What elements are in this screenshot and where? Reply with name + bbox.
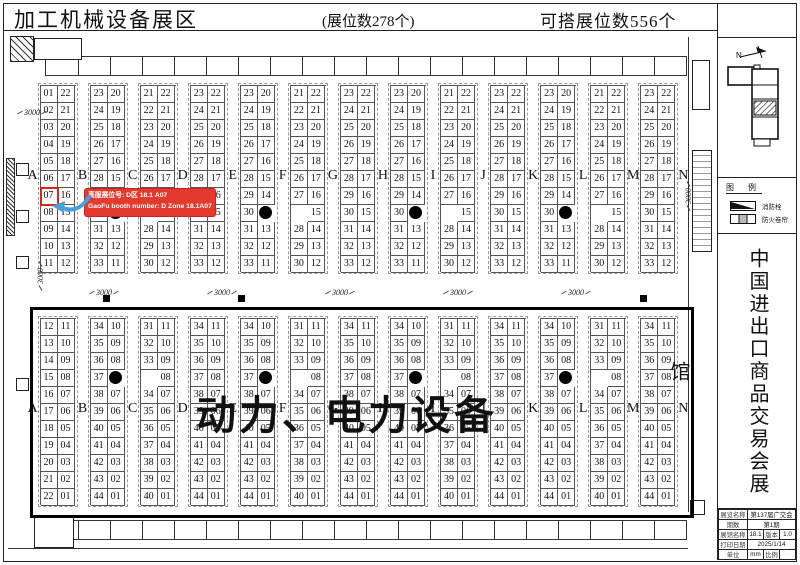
booth-cell: 16 [658, 188, 675, 205]
booth-cell: 01 [358, 489, 375, 506]
booth-cell: 09 [41, 222, 58, 239]
booth-cell: 34 [341, 319, 358, 336]
zone-letter: B [76, 85, 89, 272]
perimeter-pane [494, 57, 495, 75]
booth-cell: 23 [91, 86, 108, 103]
booth-cell: 23 [141, 120, 158, 137]
booth-cell: 13 [558, 222, 575, 239]
booth-cell: 23 [641, 86, 658, 103]
booth-cell: 15 [358, 205, 375, 222]
booth-cell: 15 [258, 171, 275, 188]
booth-cell: 22 [41, 489, 58, 506]
booth-cell: 18 [558, 120, 575, 137]
booth-cell: 09 [208, 353, 225, 370]
booth-column-pair: 2320241925182617271628152914303113321233… [90, 85, 126, 272]
buildable-count-label: 可搭展位数556个 [540, 7, 677, 32]
booth-cell: 25 [441, 154, 458, 171]
booth-cell: 02 [608, 472, 625, 489]
booth-cell: 13 [58, 239, 75, 256]
perimeter-pane [110, 521, 111, 539]
booth-cell: 18 [258, 120, 275, 137]
booth-cell: 29 [241, 188, 258, 205]
booth-cell: 19 [258, 103, 275, 120]
booth-cell: 27 [341, 154, 358, 171]
booth-cell: 16 [41, 387, 58, 404]
booth-cell: 40 [141, 489, 158, 506]
booth-cell: 22 [58, 86, 75, 103]
booth-cell: 12 [208, 256, 225, 273]
booth-cell: 33 [191, 256, 208, 273]
gaofu-booth-annotation: 高服展位号: D区 18.1 A07 GaoFu booth number: D… [85, 189, 215, 216]
booth-cell: 22 [208, 86, 225, 103]
booth-cell: 36 [241, 353, 258, 370]
booth-cell: 31 [141, 319, 158, 336]
booth-cell: 23 [441, 120, 458, 137]
annotation-line-cn: 高服展位号: D区 18.1 A07 [88, 190, 212, 201]
booth-cell: 38 [441, 455, 458, 472]
booth-cell: 08 [408, 353, 425, 370]
zone-letter: M [627, 85, 640, 272]
booth-cell: 27 [441, 188, 458, 205]
booth-cell: 02 [408, 472, 425, 489]
booth-cell: 15 [608, 205, 625, 222]
booth-cell: 20 [608, 120, 625, 137]
bottom-perimeter-structures [45, 520, 687, 540]
booth-cell: 20 [108, 86, 125, 103]
booth-cell: 39 [141, 472, 158, 489]
dimension-label: 3000 [324, 288, 356, 297]
right-stair-structure [692, 150, 712, 252]
booth-cell: 16 [508, 188, 525, 205]
booth-cell: 23 [491, 86, 508, 103]
booth-cell: 28 [391, 171, 408, 188]
booth-cell: 13 [41, 336, 58, 353]
booth-cell: 10 [208, 336, 225, 353]
booth-cell: 11 [508, 319, 525, 336]
booth-column-pair: 2322242125202619271828172916301531143213… [490, 85, 526, 272]
booth-cell: 04 [558, 438, 575, 455]
venue-vertical-title: 中国进出口商品交易会展馆 [717, 238, 796, 506]
booth-cell: 17 [308, 171, 325, 188]
booth-cell: 02 [208, 472, 225, 489]
legend-title: 图 例 [726, 182, 762, 194]
booth-cell: 02 [258, 472, 275, 489]
perimeter-pane [494, 521, 495, 539]
booth-cell: 13 [358, 239, 375, 256]
booth-cell: 19 [508, 137, 525, 154]
booth-cell: 21 [658, 103, 675, 120]
booth-cell: 13 [408, 222, 425, 239]
booth-cell: 10 [558, 319, 575, 336]
perimeter-pane [654, 57, 655, 75]
booth-cell: 07 [158, 387, 175, 404]
booth-cell: 34 [391, 319, 408, 336]
booth-cell: 33 [441, 353, 458, 370]
booth-cell: 20 [308, 120, 325, 137]
booth-cell: 02 [658, 472, 675, 489]
booth-cell: 08 [258, 353, 275, 370]
booth-cell: 39 [541, 404, 558, 421]
booth-cell: 33 [241, 256, 258, 273]
booth-cell: 10 [308, 336, 325, 353]
booth-cell: 10 [608, 336, 625, 353]
booth-cell [558, 205, 575, 222]
sidebar-divider [717, 177, 796, 178]
booth-cell: 39 [91, 404, 108, 421]
booth-cell: 10 [458, 336, 475, 353]
pillar-dot [409, 206, 422, 219]
booth-cell: 14 [208, 222, 225, 239]
booth-cell: 03 [308, 455, 325, 472]
booth-cell: 06 [558, 404, 575, 421]
booth-cell: 44 [191, 489, 208, 506]
perimeter-pane [206, 57, 207, 75]
booth-cell [441, 205, 458, 222]
booth-cell: 35 [591, 404, 608, 421]
booth-cell: 34 [591, 387, 608, 404]
booth-cell: 21 [291, 86, 308, 103]
booth-cell: 30 [341, 205, 358, 222]
booth-cell: 34 [191, 319, 208, 336]
booth-cell: 22 [291, 103, 308, 120]
zone-letter: D [176, 85, 189, 272]
booth-cell: 12 [258, 239, 275, 256]
booth-cell: 43 [191, 472, 208, 489]
booth-cell: 33 [141, 353, 158, 370]
perimeter-pane [238, 521, 239, 539]
booth-cell: 16 [358, 188, 375, 205]
booth-cell: 21 [458, 103, 475, 120]
booth-cell: 10 [41, 239, 58, 256]
booth-cell: 15 [508, 205, 525, 222]
booth-cell: 11 [658, 319, 675, 336]
booth-cell: 06 [41, 171, 58, 188]
booth-cell: 16 [558, 154, 575, 171]
booth-cell: 42 [91, 455, 108, 472]
booth-cell: 10 [258, 319, 275, 336]
booth-cell: 35 [191, 336, 208, 353]
booth-cell: 06 [508, 404, 525, 421]
booth-cell: 11 [458, 319, 475, 336]
booth-cell: 18 [508, 154, 525, 171]
booth-cell: 16 [608, 188, 625, 205]
perimeter-pane [462, 57, 463, 75]
booth-cell: 28 [241, 171, 258, 188]
booth-cell: 31 [291, 319, 308, 336]
booth-cell: 34 [91, 319, 108, 336]
booth-cell: 20 [58, 120, 75, 137]
booth-cell: 21 [508, 103, 525, 120]
zone-letter: G [326, 85, 339, 272]
booth-cell: 27 [291, 188, 308, 205]
booth-cell [408, 205, 425, 222]
perimeter-pane [238, 57, 239, 75]
booth-cell: 07 [658, 387, 675, 404]
booth-cell: 01 [408, 489, 425, 506]
booth-cell: 07 [58, 387, 75, 404]
booth-cell: 16 [408, 154, 425, 171]
booth-cell: 21 [208, 103, 225, 120]
booth-cell: 09 [508, 353, 525, 370]
booth-cell: 36 [491, 353, 508, 370]
booth-cell: 28 [541, 171, 558, 188]
booth-cell: 44 [341, 489, 358, 506]
booth-cell: 11 [208, 319, 225, 336]
booth-cell: 26 [391, 137, 408, 154]
titleblock-row: 期数 第1期 [719, 520, 796, 530]
booth-cell: 18 [158, 154, 175, 171]
booth-column-pair: 2322242125202619271828172916301531143213… [640, 85, 676, 272]
booth-cell: 01 [258, 489, 275, 506]
booth-column-pair: 2320241925182617271628152914303113321233… [390, 85, 426, 272]
booth-cell: 15 [658, 205, 675, 222]
booth-cell: 08 [558, 353, 575, 370]
booth-cell: 03 [158, 455, 175, 472]
booth-cell: 20 [558, 86, 575, 103]
booth-cell: 35 [491, 336, 508, 353]
booth-cell: 01 [508, 489, 525, 506]
booth-cell: 06 [158, 404, 175, 421]
perimeter-pane [142, 521, 143, 539]
booth-cell: 18 [308, 154, 325, 171]
booth-cell: 19 [358, 137, 375, 154]
booth-cell: 32 [541, 239, 558, 256]
zone-letter: C [126, 85, 139, 272]
booth-cell: 03 [358, 455, 375, 472]
booth-cell: 03 [658, 455, 675, 472]
booth-cell: 21 [591, 86, 608, 103]
booth-cell: 18 [58, 154, 75, 171]
booth-cell: 11 [158, 319, 175, 336]
booth-cell: 25 [91, 120, 108, 137]
booth-cell: 41 [541, 438, 558, 455]
pillar-dot [559, 371, 572, 384]
booth-cell: 26 [541, 137, 558, 154]
booth-cell: 29 [641, 188, 658, 205]
booth-cell: 21 [158, 103, 175, 120]
perimeter-pane [302, 57, 303, 75]
booth-cell: 22 [508, 86, 525, 103]
booth-cell: 33 [491, 256, 508, 273]
booth-cell: 28 [191, 171, 208, 188]
booth-cell: 03 [258, 455, 275, 472]
booth-cell: 17 [41, 404, 58, 421]
vestibule-structure [34, 38, 82, 60]
booth-cell: 02 [158, 472, 175, 489]
booth-cell: 12 [658, 256, 675, 273]
booth-cell: 26 [241, 137, 258, 154]
booth-cell: 13 [308, 239, 325, 256]
booth-cell: 01 [108, 489, 125, 506]
booth-cell: 17 [658, 171, 675, 188]
booth-cell: 18 [608, 154, 625, 171]
booth-cell: 10 [658, 336, 675, 353]
zone-letter: N [677, 318, 690, 505]
booth-cell: 35 [391, 336, 408, 353]
booth-cell: 02 [58, 472, 75, 489]
booth-cell: 22 [441, 103, 458, 120]
booth-cell: 23 [191, 86, 208, 103]
booth-cell: 16 [458, 188, 475, 205]
booth-cell: 29 [141, 239, 158, 256]
booth-cell: 25 [391, 120, 408, 137]
booth-cell: 13 [258, 222, 275, 239]
booth-cell: 09 [58, 353, 75, 370]
zone-letter: N [677, 85, 690, 272]
booth-column-pair: 3111321033090834073506360537043803390240… [590, 318, 626, 505]
booth-cell: 43 [91, 472, 108, 489]
booth-cell: 22 [308, 86, 325, 103]
booth-cell: 08 [158, 370, 175, 387]
perimeter-pane [366, 57, 367, 75]
grid-marker [238, 295, 245, 302]
booth-cell: 16 [108, 154, 125, 171]
booth-cell: 26 [191, 137, 208, 154]
dimension-label: 3000 [36, 260, 45, 292]
booth-cell: 42 [241, 455, 258, 472]
booth-cell: 42 [641, 455, 658, 472]
booth-cell: 11 [358, 319, 375, 336]
booth-cell: 11 [308, 319, 325, 336]
booth-cell: 25 [241, 120, 258, 137]
booth-cell: 39 [291, 472, 308, 489]
booth-cell: 31 [391, 222, 408, 239]
booth-cell: 18 [358, 154, 375, 171]
booth-cell: 38 [541, 387, 558, 404]
bottom-wall-line [8, 548, 688, 549]
pillar-dot [559, 206, 572, 219]
booth-cell: 43 [541, 472, 558, 489]
booth-cell: 42 [491, 455, 508, 472]
booth-cell: 34 [541, 319, 558, 336]
booth-cell: 30 [641, 205, 658, 222]
booth-cell: 34 [641, 319, 658, 336]
booth-cell: 19 [608, 137, 625, 154]
booth-cell: 07 [108, 387, 125, 404]
booth-cell: 09 [458, 353, 475, 370]
perimeter-pane [334, 57, 335, 75]
booth-cell: 36 [91, 353, 108, 370]
booth-cell: 25 [591, 154, 608, 171]
booth-cell: 04 [58, 438, 75, 455]
booth-cell: 17 [458, 171, 475, 188]
booth-cell: 19 [58, 137, 75, 154]
booth-cell: 33 [541, 256, 558, 273]
booth-cell: 19 [308, 137, 325, 154]
legend-item-label: 消防栓 [762, 201, 782, 211]
booth-cell: 21 [441, 86, 458, 103]
grid-marker [640, 295, 647, 302]
booth-cell: 15 [41, 370, 58, 387]
booth-cell: 35 [141, 404, 158, 421]
booth-cell: 43 [391, 472, 408, 489]
booth-cell: 16 [308, 188, 325, 205]
corner-structure [34, 516, 74, 548]
booth-cell: 17 [58, 171, 75, 188]
booth-cell: 28 [341, 171, 358, 188]
perimeter-pane [590, 521, 591, 539]
booth-cell: 02 [358, 472, 375, 489]
perimeter-pane [366, 521, 367, 539]
booth-cell: 36 [141, 421, 158, 438]
booth-cell: 36 [191, 353, 208, 370]
booth-cell: 44 [391, 489, 408, 506]
booth-cell: 26 [341, 137, 358, 154]
booth-cell: 17 [558, 137, 575, 154]
booth-column-pair: 3411351036093708380739064005410442034302… [640, 318, 676, 505]
booth-cell: 09 [358, 353, 375, 370]
booth-cell: 30 [541, 205, 558, 222]
booth-cell: 12 [558, 239, 575, 256]
booth-cell: 24 [341, 103, 358, 120]
booth-cell: 24 [491, 103, 508, 120]
booth-cell: 15 [308, 205, 325, 222]
booth-cell: 09 [558, 336, 575, 353]
booth-cell: 23 [391, 86, 408, 103]
booth-cell: 14 [41, 353, 58, 370]
booth-cell: 37 [91, 370, 108, 387]
booth-cell: 19 [208, 137, 225, 154]
booth-cell: 24 [241, 103, 258, 120]
booth-cell: 30 [241, 205, 258, 222]
booth-cell: 11 [608, 319, 625, 336]
booth-cell: 05 [41, 154, 58, 171]
booth-cell: 09 [258, 336, 275, 353]
booth-cell: 40 [441, 489, 458, 506]
booth-cell: 11 [108, 256, 125, 273]
header-divider [4, 30, 717, 31]
booth-cell: 02 [308, 472, 325, 489]
booth-cell: 05 [108, 421, 125, 438]
perimeter-pane [526, 521, 527, 539]
booth-cell: 07 [608, 387, 625, 404]
booth-cell: 42 [341, 455, 358, 472]
perimeter-pane [398, 521, 399, 539]
booth-cell: 25 [341, 120, 358, 137]
booth-cell: 20 [41, 455, 58, 472]
booth-cell: 40 [541, 421, 558, 438]
booth-cell: 26 [591, 171, 608, 188]
booth-cell: 18 [658, 154, 675, 171]
booth-cell: 22 [658, 86, 675, 103]
booth-cell: 22 [608, 86, 625, 103]
booth-cell: 40 [91, 421, 108, 438]
booth-cell: 32 [291, 336, 308, 353]
booth-cell: 38 [141, 455, 158, 472]
booth-cell: 31 [641, 222, 658, 239]
booth-cell: 37 [541, 370, 558, 387]
booth-cell: 23 [241, 86, 258, 103]
booth-cell: 32 [441, 336, 458, 353]
booth-cell: 22 [358, 86, 375, 103]
titleblock-row: 单位 mm 比例 [719, 550, 796, 560]
booth-cell: 33 [91, 256, 108, 273]
perimeter-pane [462, 521, 463, 539]
booth-cell: 27 [491, 154, 508, 171]
booth-cell: 06 [658, 404, 675, 421]
booth-cell: 21 [308, 103, 325, 120]
booth-cell: 31 [241, 222, 258, 239]
booth-cell: 32 [191, 239, 208, 256]
booth-cell: 12 [408, 239, 425, 256]
booth-cell: 44 [541, 489, 558, 506]
booth-cell: 33 [291, 353, 308, 370]
zone-letter: I [427, 85, 440, 272]
booth-cell: 01 [58, 489, 75, 506]
booth-cell: 43 [491, 472, 508, 489]
booth-cell: 15 [558, 171, 575, 188]
booth-cell: 03 [608, 455, 625, 472]
